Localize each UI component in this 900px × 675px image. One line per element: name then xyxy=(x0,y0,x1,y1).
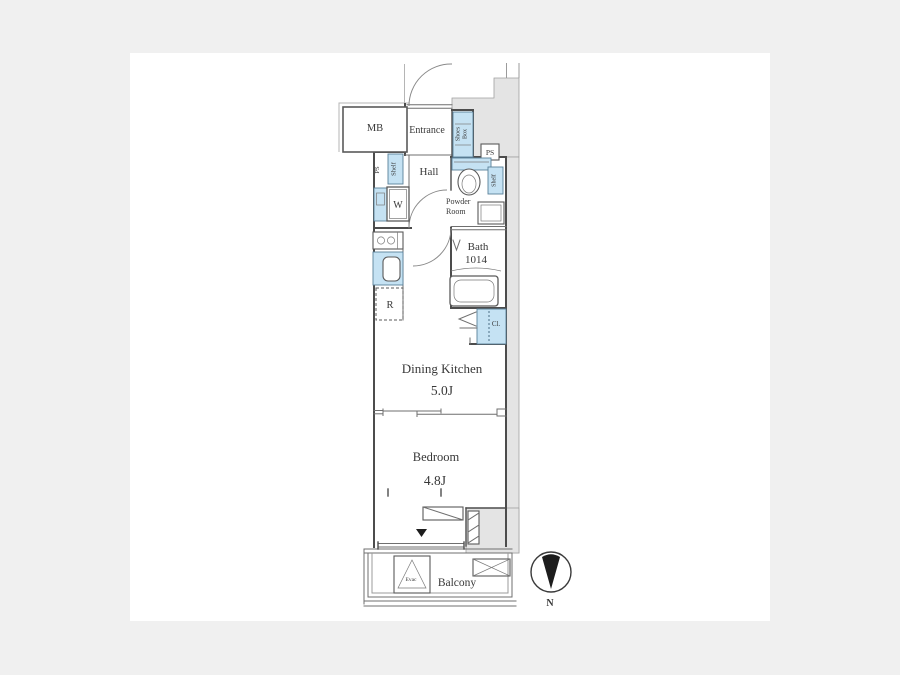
entrance-door xyxy=(407,64,452,108)
dining-kitchen-label: Dining Kitchen xyxy=(402,361,483,376)
compass: N xyxy=(531,552,571,609)
powder-door-arc xyxy=(409,190,447,228)
ps-label: PS xyxy=(486,148,494,157)
ps-hall-label: PS xyxy=(374,166,381,174)
sliding-partition xyxy=(374,409,506,417)
door-swing-arc xyxy=(409,64,452,106)
shower-symbol xyxy=(453,240,460,250)
hall-dk-door-arc xyxy=(413,228,451,266)
shoes-box-label-2: Box xyxy=(463,129,469,139)
balcony-label: Balcony xyxy=(438,577,477,589)
bedroom-label: Bedroom xyxy=(413,450,460,464)
shoes-box: Shoes Box xyxy=(453,112,473,157)
closet-door-arrow xyxy=(459,312,476,326)
kitchen: R xyxy=(373,232,403,320)
powder-room-label-1: Powder xyxy=(446,197,471,206)
bedroom: Bedroom 4.8J xyxy=(378,450,479,549)
evac-hatch-label: Evac xyxy=(406,577,418,583)
entrance-label: Entrance xyxy=(409,125,445,136)
dining-kitchen-size: 5.0J xyxy=(431,383,453,398)
direction-triangle xyxy=(416,529,427,537)
page-background: MB Shoes Box PS PS Shelf W Entrance xyxy=(0,0,900,675)
closet-label: Cl. xyxy=(492,320,501,328)
washing-machine-label: W xyxy=(393,200,403,211)
floorplan-drawing: MB Shoes Box PS PS Shelf W Entrance xyxy=(0,0,900,675)
hall-fixtures: PS Shelf W xyxy=(374,154,409,221)
bathtub-rim-curve xyxy=(451,268,501,271)
hall-shelf-label: Shelf xyxy=(391,161,398,176)
shaft-gray-right-strip xyxy=(506,157,519,553)
bathroom: Bath 1014 xyxy=(450,240,501,306)
balcony: Evac Balcony xyxy=(364,553,516,606)
closet: Cl. xyxy=(459,309,506,344)
toilet-bowl xyxy=(458,169,480,195)
meter-box: MB xyxy=(343,107,407,152)
hall-label: Hall xyxy=(420,166,439,178)
refrigerator-label: R xyxy=(386,300,393,311)
evac-hatch-triangle xyxy=(398,560,426,588)
toilet-tank xyxy=(452,158,491,170)
powder-room: Powder Room Shelf xyxy=(446,158,504,224)
kitchen-sink xyxy=(383,257,400,281)
bath-size-label: 1014 xyxy=(465,254,488,266)
powder-room-label-2: Room xyxy=(446,207,466,216)
powder-shelf-label: Shelf xyxy=(491,174,498,187)
bath-label: Bath xyxy=(468,241,489,253)
meter-box-label: MB xyxy=(367,123,383,134)
compass-north-label: N xyxy=(546,598,554,609)
balcony-rail-outer xyxy=(368,553,512,597)
interior-doors xyxy=(409,190,451,266)
evac-hatch-box xyxy=(394,556,430,593)
bathtub xyxy=(450,276,498,306)
bedroom-size: 4.8J xyxy=(424,473,446,488)
shoes-box-label-1: Shoes xyxy=(456,126,462,141)
